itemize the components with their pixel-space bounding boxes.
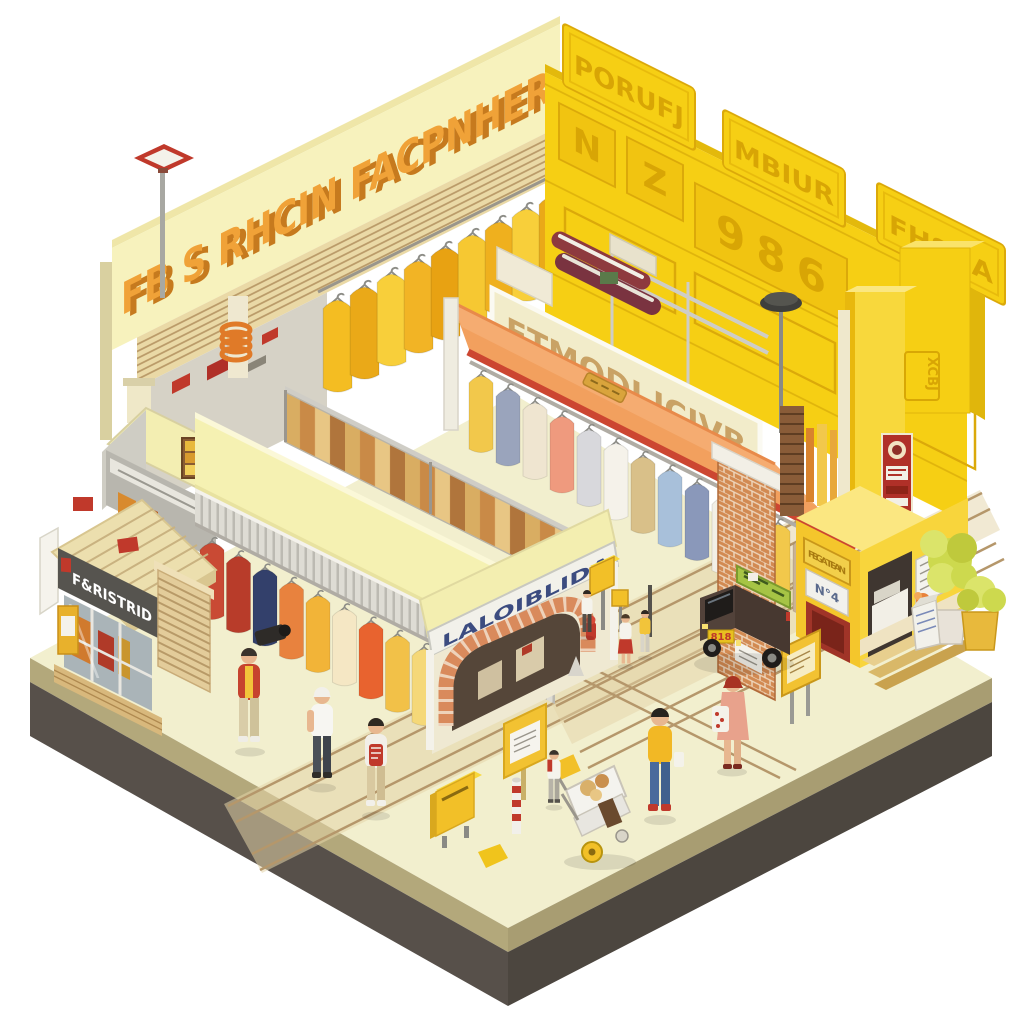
stall-left-pillar [444, 298, 458, 430]
scene-canvas: FB S RHCIN FACPNHER FB S RHCIN FACPNHER [0, 0, 1024, 1024]
plant-pot-yellow [962, 612, 998, 650]
red-parcel [117, 537, 139, 554]
tower-cream-pillar [838, 310, 850, 522]
wood-shutter [780, 406, 804, 516]
red-box [73, 497, 93, 511]
isometric-market-illustration: FB S RHCIN FACPNHER FB S RHCIN FACPNHER [0, 0, 1024, 1024]
plant-pot-white [936, 610, 966, 644]
tower-plate: XCBJ [905, 352, 939, 400]
tower-plate-text: XCBJ [924, 357, 939, 391]
white-banner [40, 528, 58, 614]
wall-end-face [100, 262, 112, 440]
kiosk-doorway-goods [806, 424, 837, 506]
striped-bollard [512, 778, 521, 835]
